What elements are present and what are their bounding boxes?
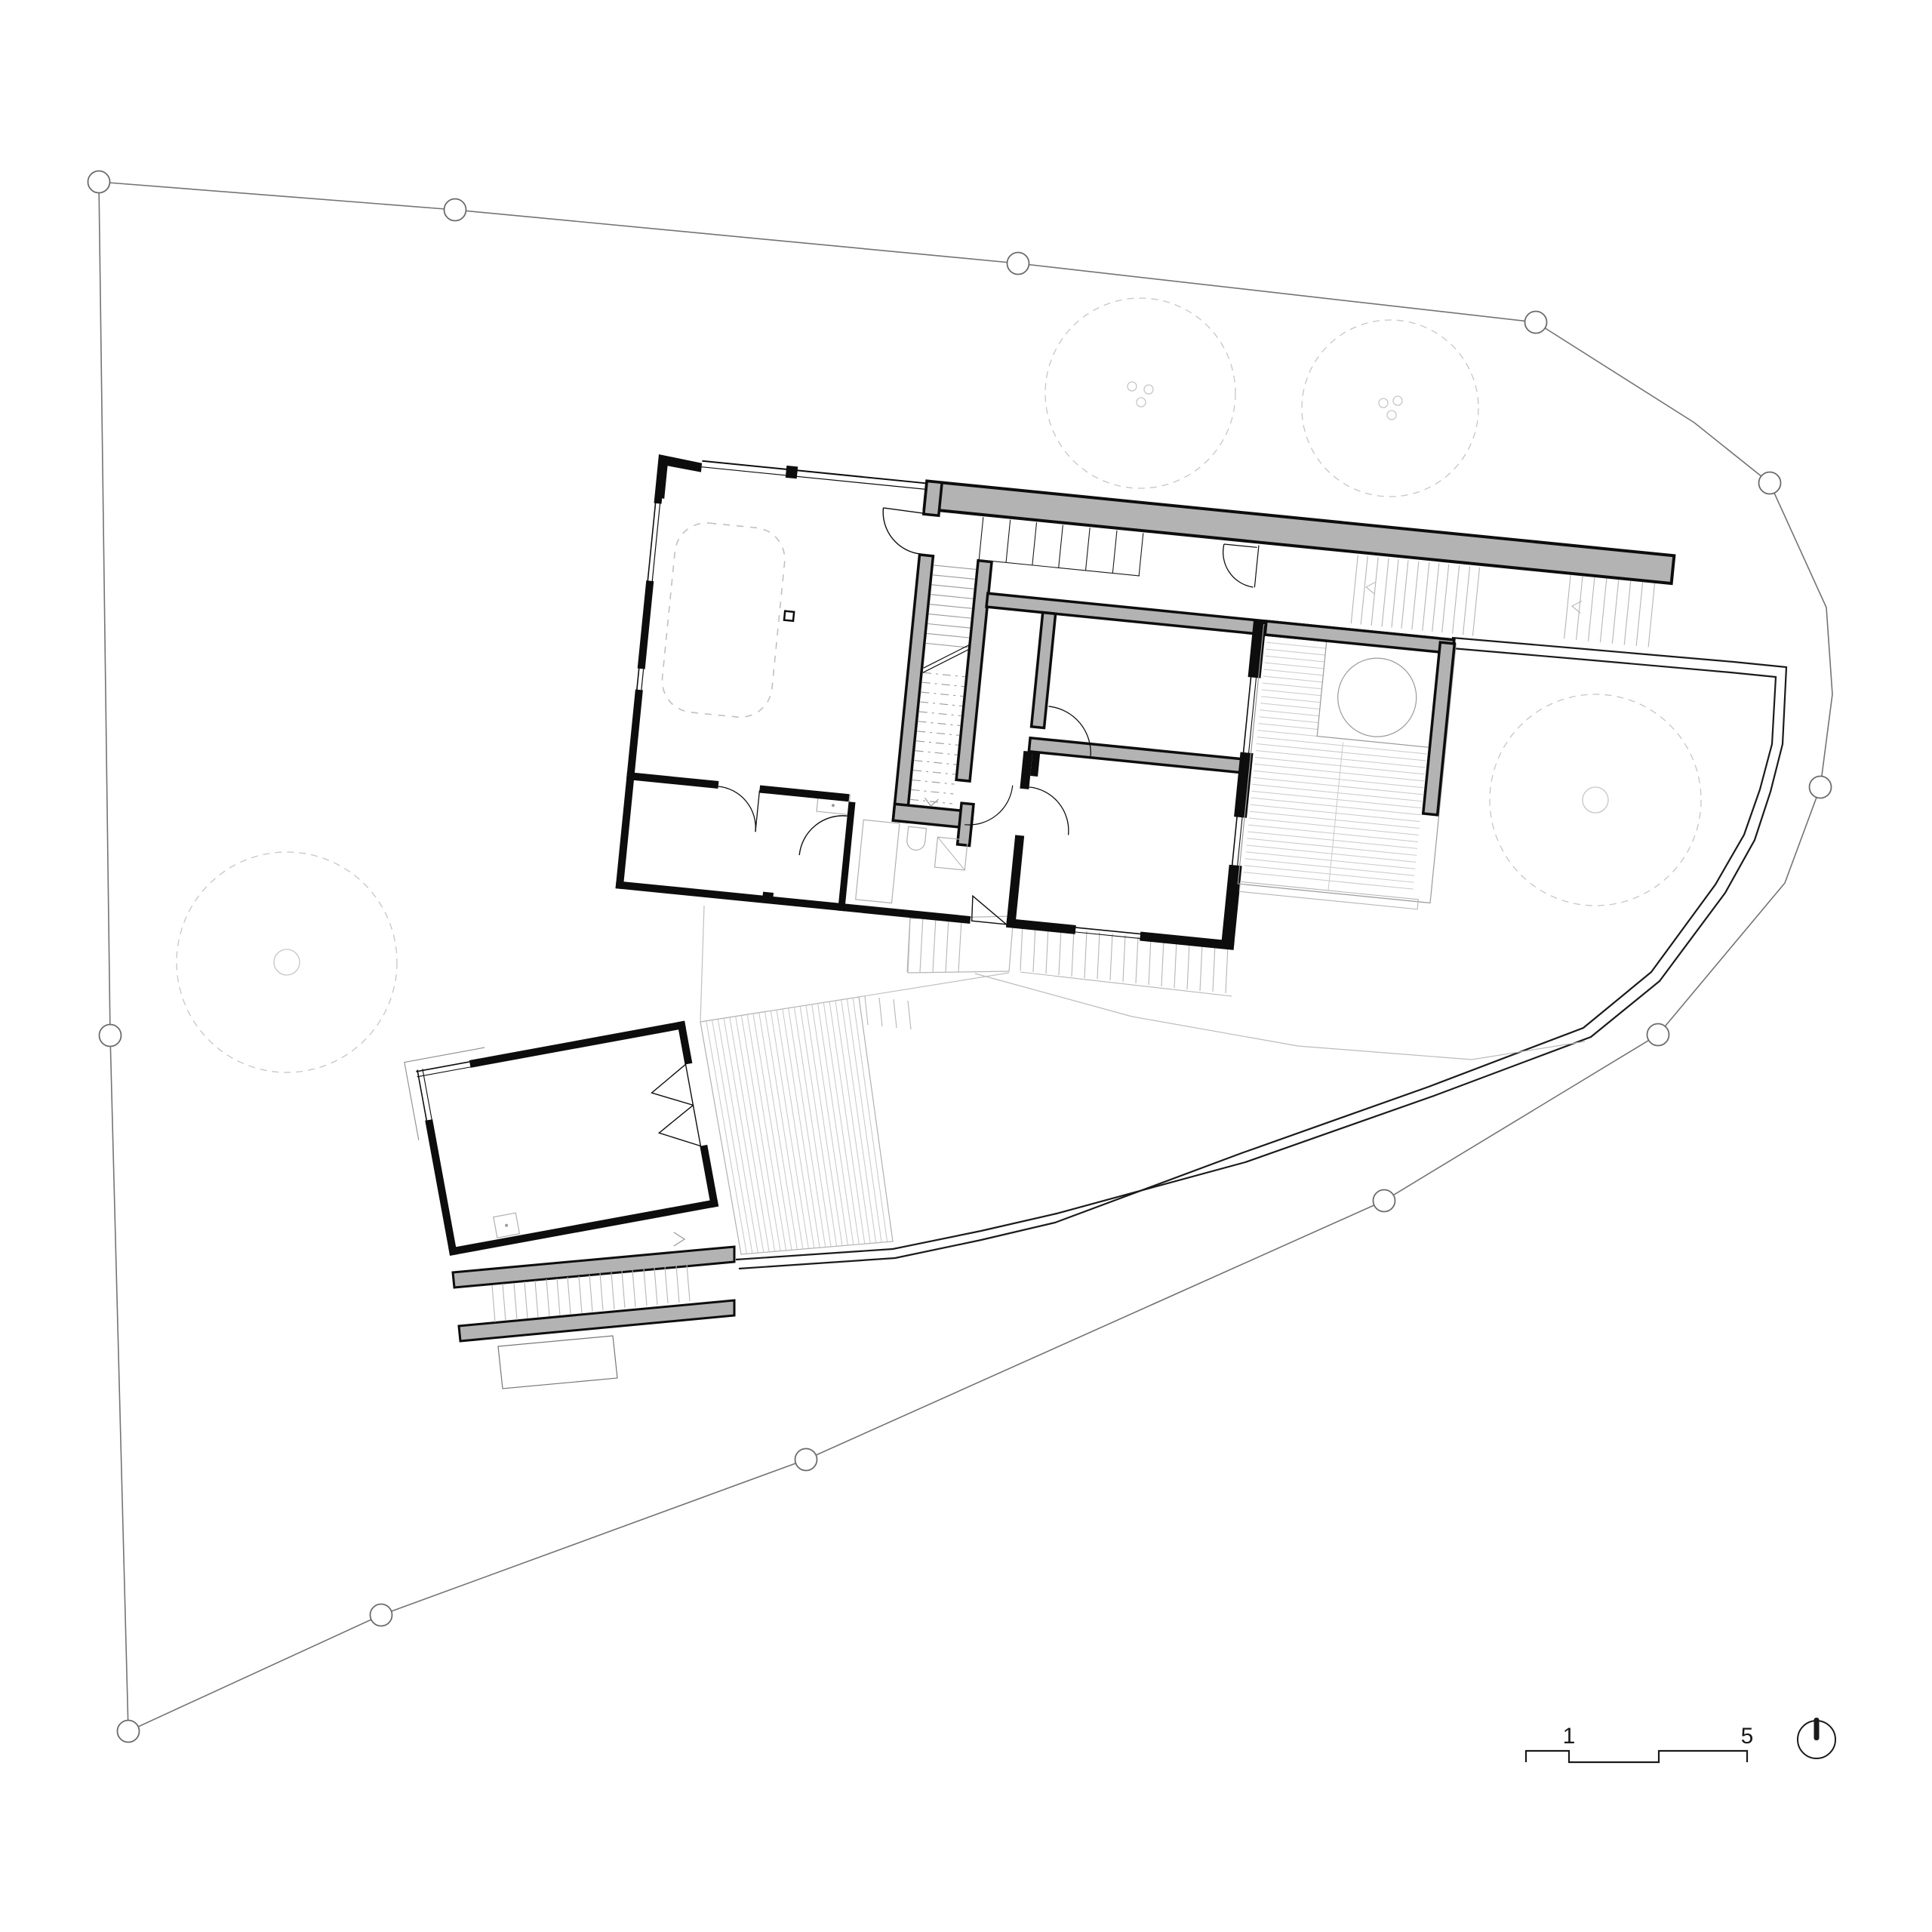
svg-text:1: 1	[1563, 1724, 1576, 1749]
svg-text:5: 5	[1741, 1724, 1754, 1749]
